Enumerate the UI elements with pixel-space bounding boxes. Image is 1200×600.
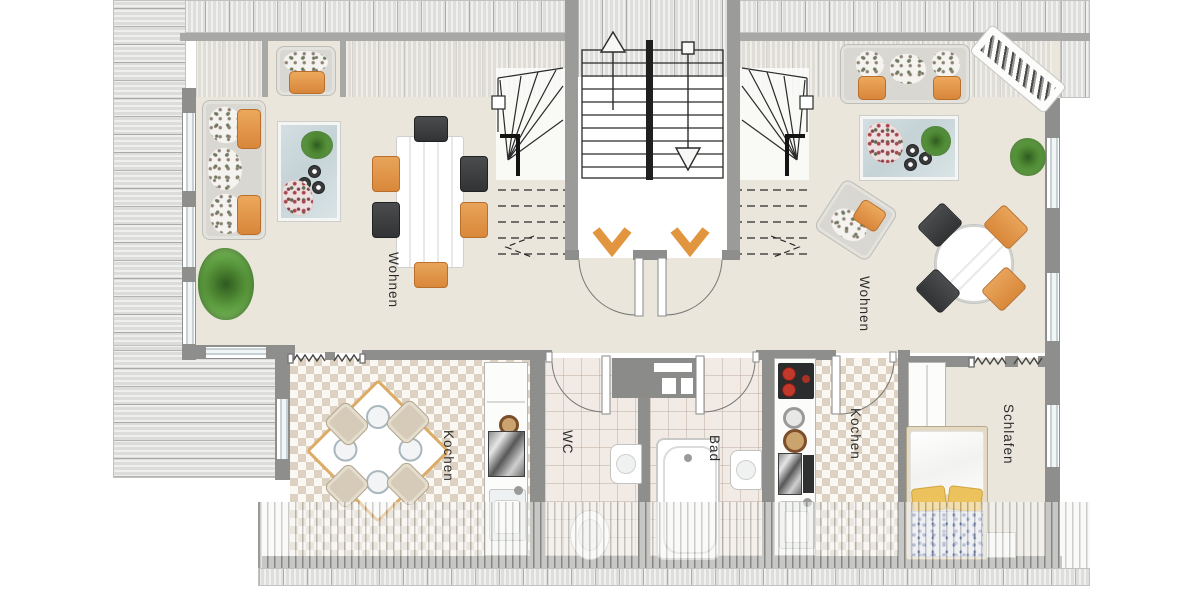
zigzag-bedroom-2 — [1014, 358, 1042, 364]
bath-door-leaf — [696, 356, 704, 414]
wall-break-zigzags — [288, 354, 1042, 367]
zigzag-kitchen-2 — [334, 355, 362, 361]
chevron-right-icon — [674, 230, 706, 250]
chevron-left-icon — [596, 230, 628, 250]
kitchen-right-door-leaf — [832, 356, 840, 414]
kitchen-right-door-swing — [838, 362, 894, 414]
zigzag-kitchen-1 — [293, 355, 325, 361]
room-label-kitchen-left: Kochen — [441, 430, 456, 482]
winder-stairs-left — [492, 68, 565, 258]
stair-start-square — [682, 42, 694, 54]
room-label-bath: Bad — [707, 435, 722, 462]
room-label-wc: WC — [560, 430, 575, 455]
bath-door-post — [753, 352, 759, 362]
kitchen-right-door-post — [890, 352, 896, 362]
wc-door-swing — [552, 362, 604, 412]
plan-linework — [0, 0, 1200, 600]
winder-stairs-right — [740, 68, 813, 258]
zigzag-post-1 — [288, 354, 293, 363]
floor-plan: Wohnen Kochen WC Bad Kochen Schlafen Woh… — [0, 0, 1200, 600]
entry-chevrons — [596, 230, 706, 250]
entry-door-left-leaf — [635, 258, 643, 316]
room-label-living-left: Wohnen — [386, 252, 401, 308]
wc-door-leaf — [602, 356, 610, 414]
staircase — [582, 40, 723, 180]
entry-door-left-swing — [579, 260, 635, 315]
stair-up-arrow-icon — [601, 32, 625, 52]
zigzag-bedroom-1 — [974, 358, 1006, 364]
doors — [546, 258, 896, 414]
entry-door-right-swing — [666, 260, 722, 315]
room-label-living-right: Wohnen — [857, 276, 872, 332]
zigzag-post-2 — [360, 354, 365, 363]
zigzag-post-3 — [969, 358, 974, 367]
room-label-bedroom: Schlafen — [1001, 404, 1016, 465]
room-label-kitchen-right: Kochen — [848, 408, 863, 460]
bath-door-swing — [703, 362, 755, 412]
wc-door-post — [546, 352, 552, 362]
entry-door-right-leaf — [658, 258, 666, 316]
